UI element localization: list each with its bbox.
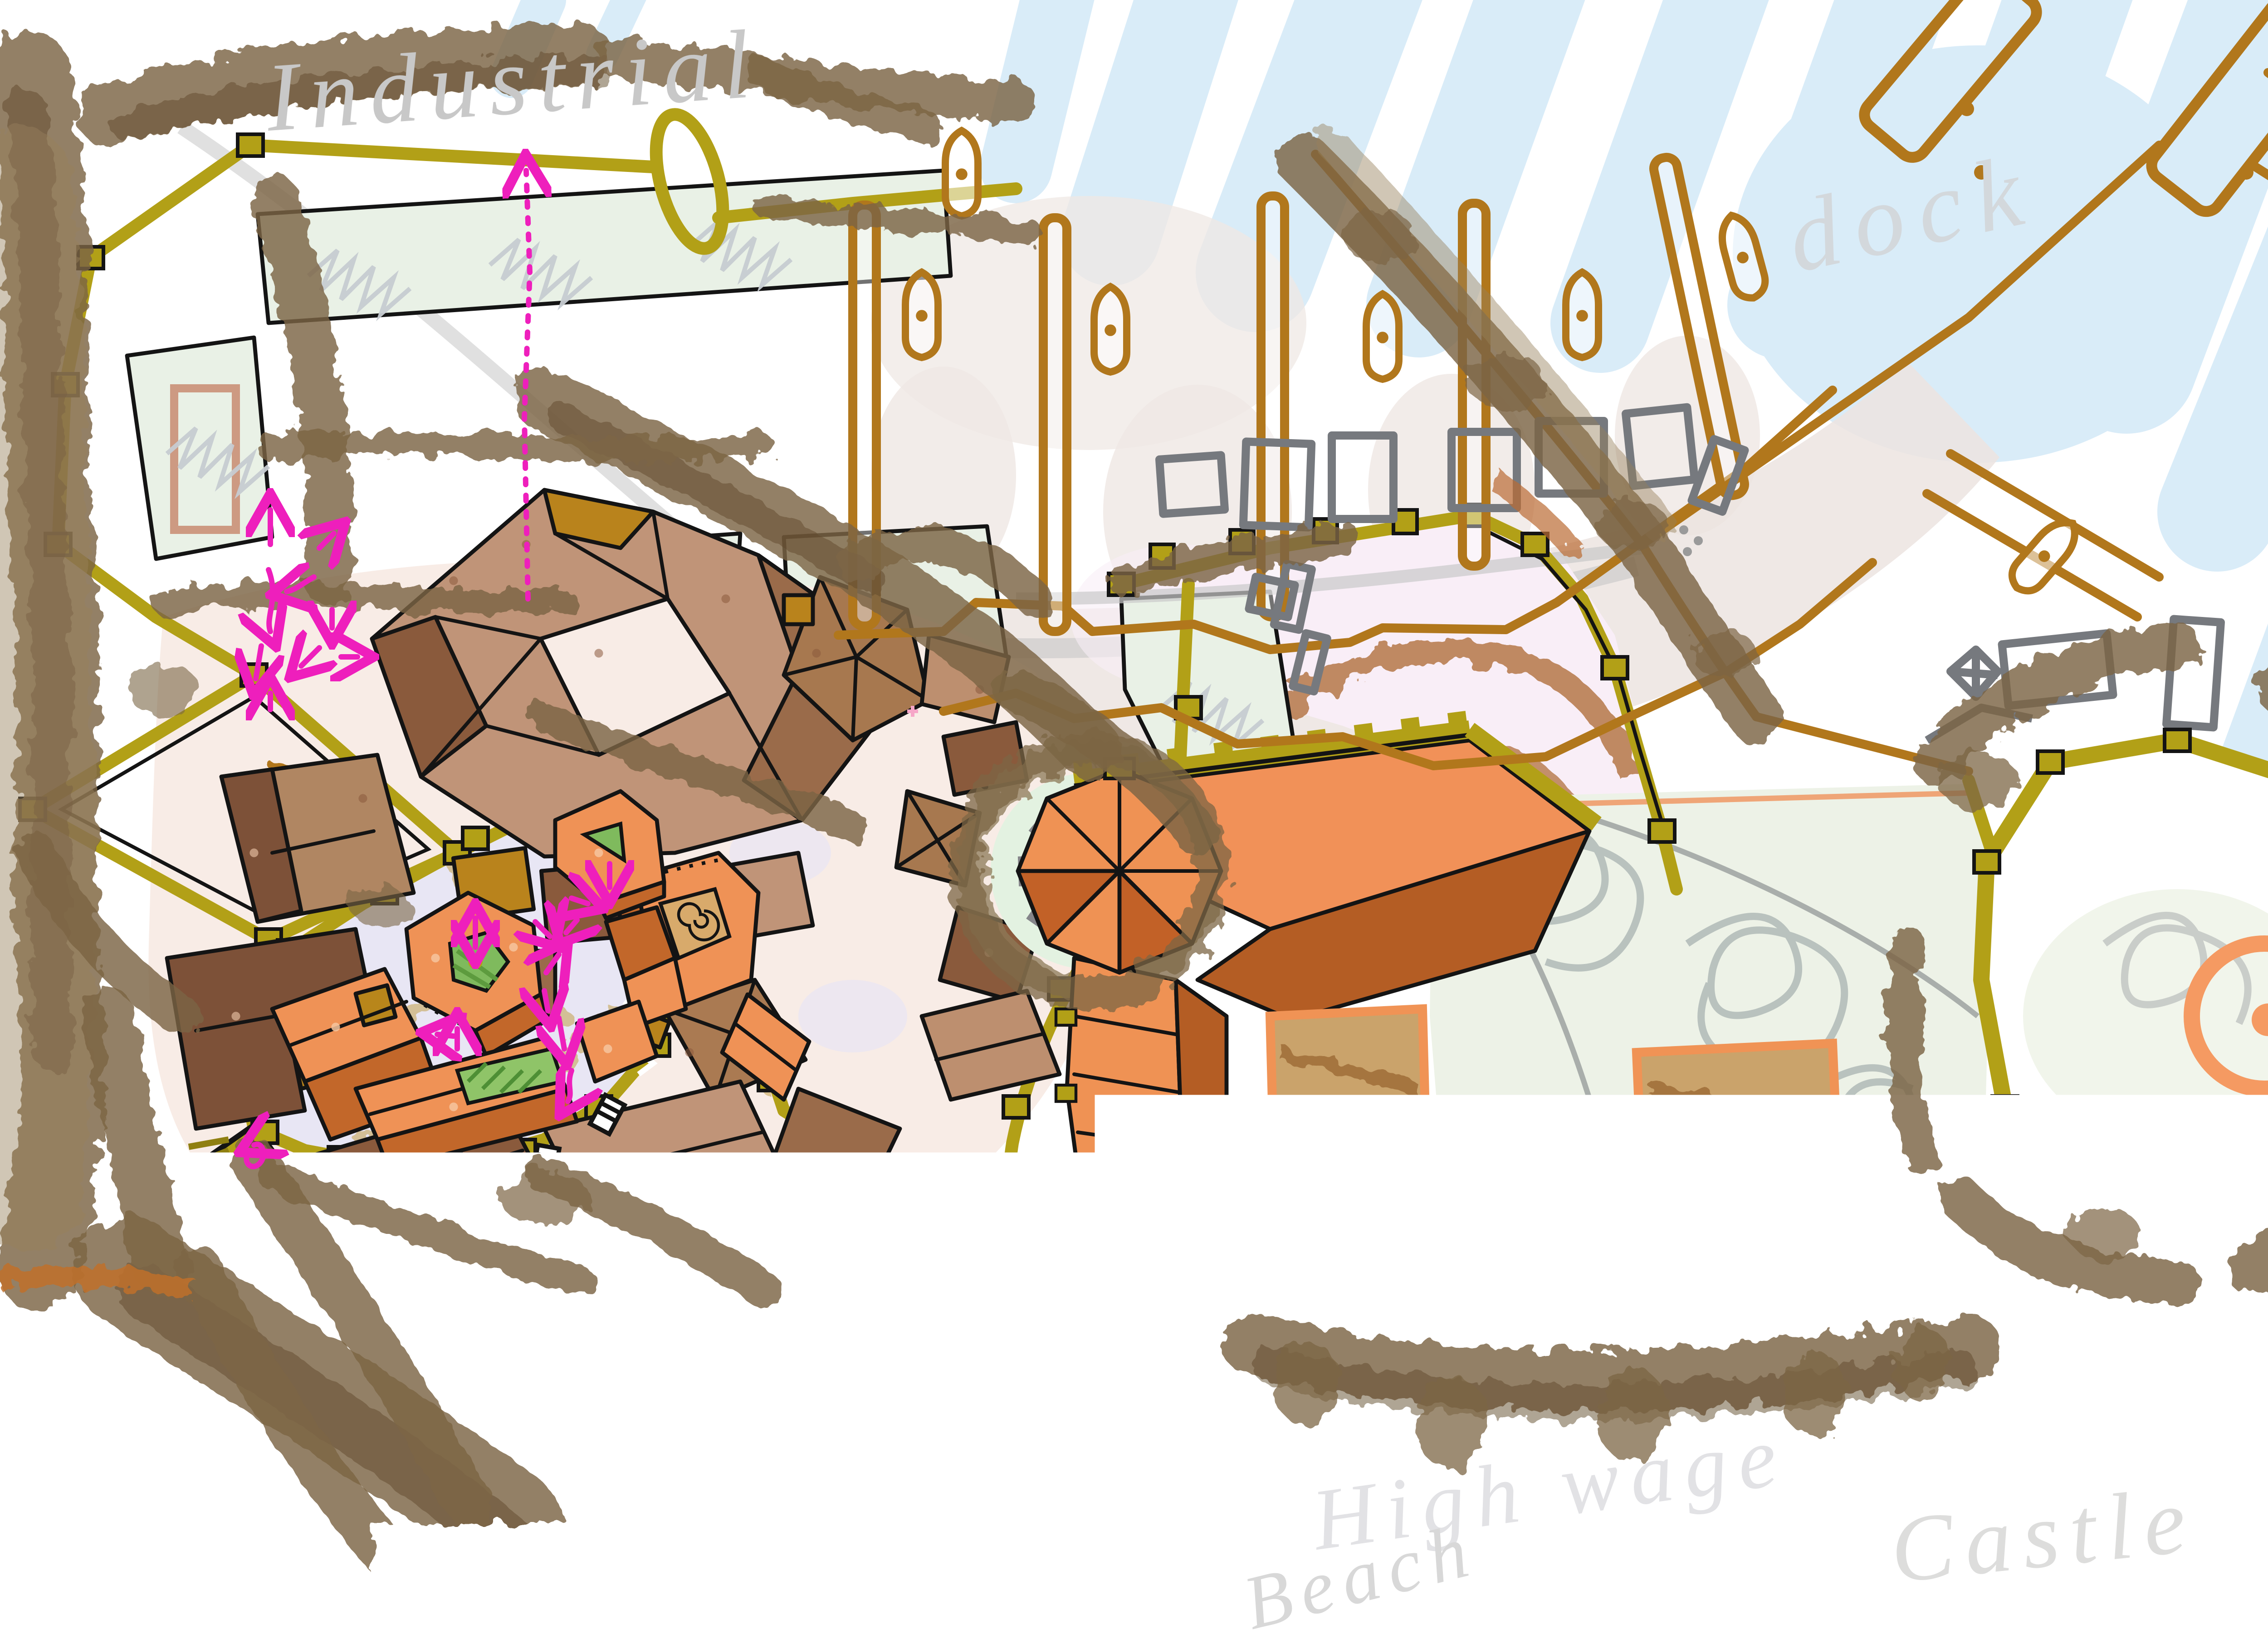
city-map-canvas: Industrial dock Castle High wage Beach (0, 0, 2268, 1644)
